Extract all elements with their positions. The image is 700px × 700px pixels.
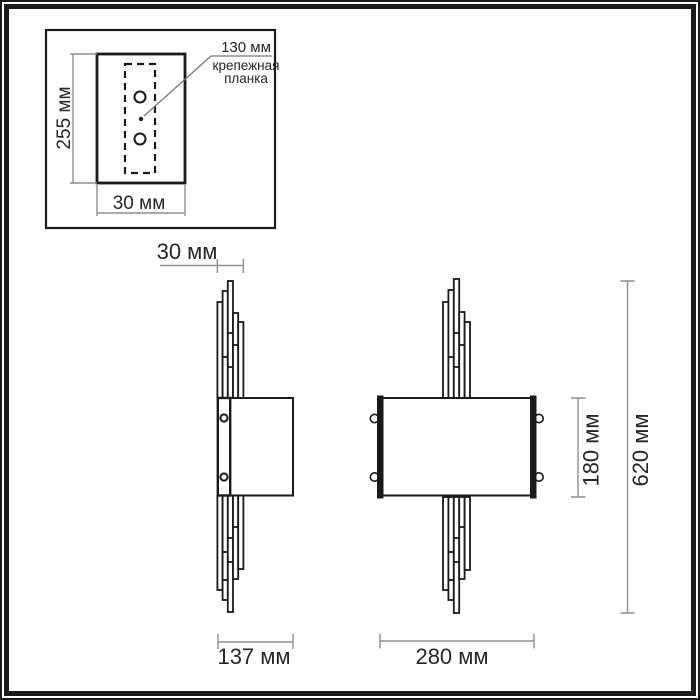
side-shade xyxy=(230,398,293,496)
inset-height-label: 255 мм xyxy=(54,86,75,149)
front-width-label: 280 мм xyxy=(415,644,488,669)
inset-width-label: 30 мм xyxy=(113,193,166,214)
front-shade-height-dimension: 180 мм xyxy=(571,398,604,497)
front-total-height-label: 620 мм xyxy=(628,413,653,486)
inset-plate-caption-line2: планка xyxy=(224,71,268,86)
sconce-side-view: 30 мм 137 мм xyxy=(157,239,293,669)
front-shade xyxy=(381,398,534,496)
mounting-plate-inset: 130 мм крепежная планка 255 мм 30 мм xyxy=(46,30,279,228)
front-width-dimension: 280 мм xyxy=(380,634,534,670)
inset-offset-label: 130 мм xyxy=(221,39,271,56)
sconce-dimension-drawing: 130 мм крепежная планка 255 мм 30 мм xyxy=(0,0,700,700)
side-rod-width-dimension: 30 мм xyxy=(157,239,244,273)
front-top-rods xyxy=(443,279,470,399)
front-shade-left-cap xyxy=(377,396,384,499)
side-depth-label: 137 мм xyxy=(217,644,290,669)
front-shade-height-label: 180 мм xyxy=(579,413,604,486)
side-depth-dimension: 137 мм xyxy=(217,634,293,669)
inset-center-point xyxy=(139,117,143,121)
side-rod-width-label: 30 мм xyxy=(157,239,218,264)
technical-drawing-canvas: 130 мм крепежная планка 255 мм 30 мм xyxy=(0,0,700,700)
side-bottom-rods xyxy=(217,496,243,613)
sconce-front-view: 280 мм 180 мм 620 мм xyxy=(370,279,653,669)
front-total-height-dimension: 620 мм xyxy=(621,281,654,613)
side-top-rods xyxy=(217,281,243,399)
front-bottom-rods xyxy=(443,497,470,613)
front-shade-right-cap xyxy=(530,396,537,499)
